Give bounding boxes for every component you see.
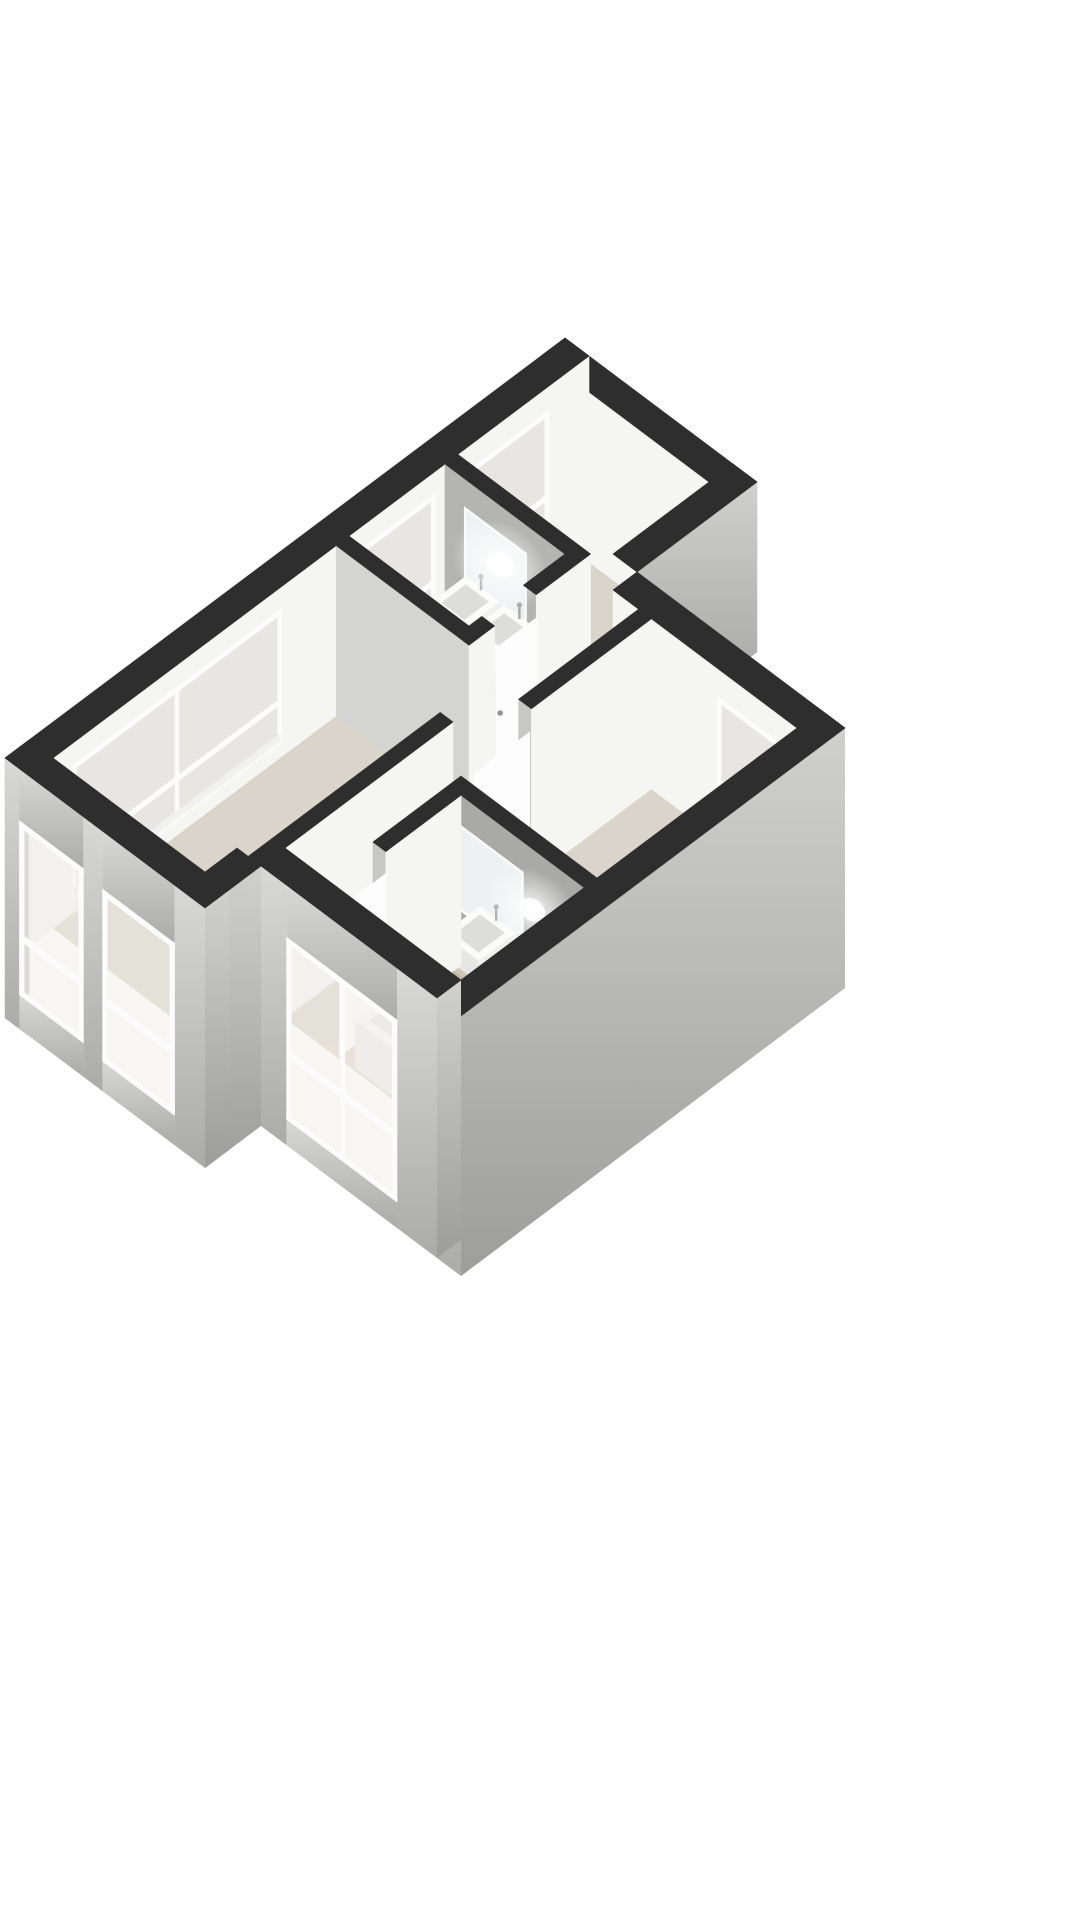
door-handle-icon	[497, 710, 503, 716]
floor-plan-image: 3D isometric floor plan render	[0, 0, 1080, 1920]
floorplan-svg	[0, 0, 1080, 1920]
